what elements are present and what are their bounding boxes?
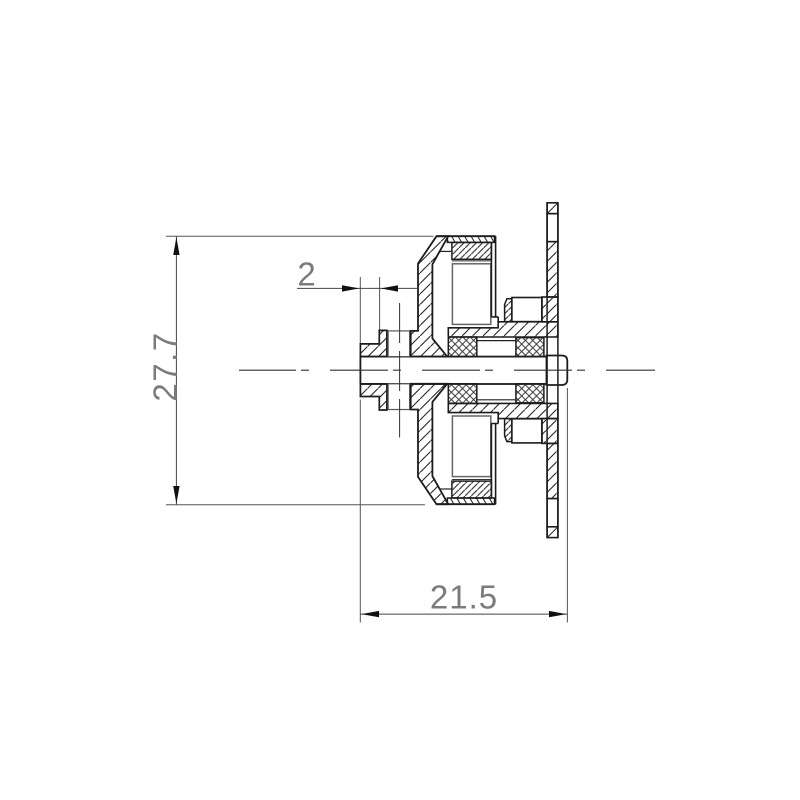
svg-text:21.5: 21.5 xyxy=(430,579,498,616)
svg-text:27.7: 27.7 xyxy=(147,331,184,401)
svg-text:2: 2 xyxy=(297,256,315,293)
